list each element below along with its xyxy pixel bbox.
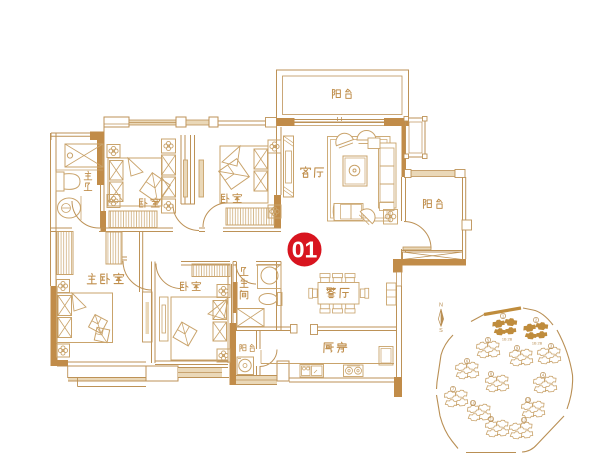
- svg-text:10: 10: [471, 401, 476, 406]
- svg-text:1B 2B: 1B 2B: [532, 342, 543, 346]
- svg-text:11: 11: [489, 417, 494, 422]
- svg-text:13: 13: [526, 398, 531, 403]
- svg-text:N: N: [439, 303, 443, 309]
- svg-text:01: 01: [292, 237, 318, 263]
- svg-text:12: 12: [522, 418, 527, 423]
- svg-text:S: S: [439, 328, 443, 334]
- svg-text:1B 2B: 1B 2B: [502, 338, 513, 342]
